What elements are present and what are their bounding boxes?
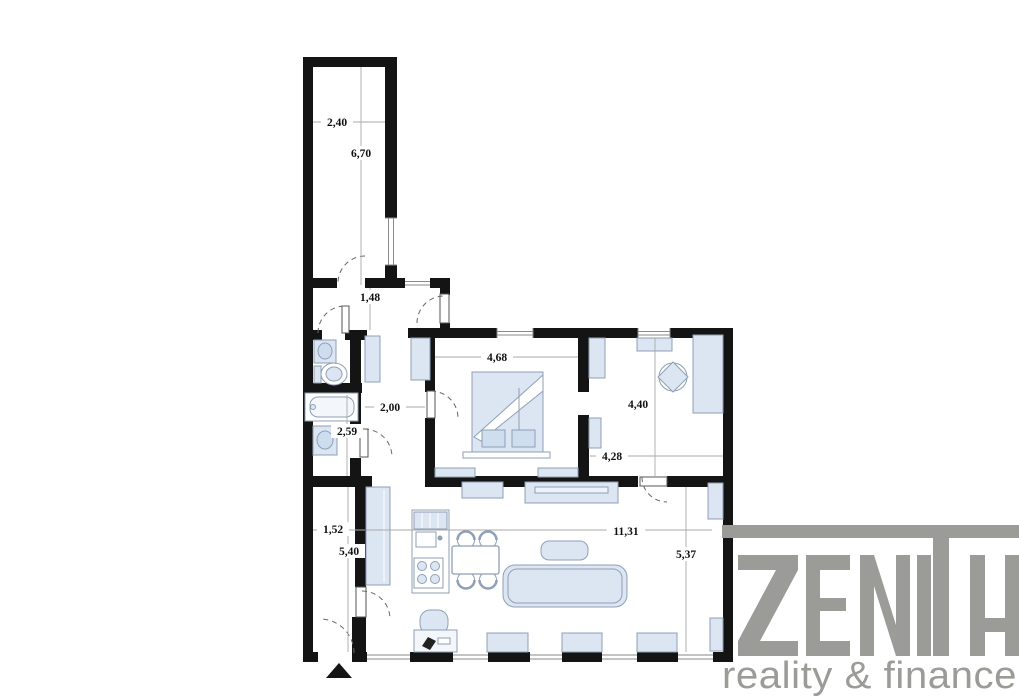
radiator: [487, 633, 528, 652]
radiator: [538, 468, 578, 477]
wall-segment: [303, 476, 372, 487]
tv-bench: [462, 482, 618, 503]
zenith-logo: reality & finance: [722, 525, 1019, 697]
dimension-label-corridor2-width: 1,52: [323, 524, 343, 536]
dimension-label-entry-hall-depth: 1,48: [360, 292, 380, 304]
wall-segment: [352, 617, 366, 652]
door-leaf: [342, 306, 349, 333]
wall-segment: [303, 652, 318, 662]
kitchen-counter: [366, 487, 390, 585]
logo-letter-t-stem: [933, 525, 949, 656]
bathtub-icon: [305, 393, 358, 421]
window: [602, 652, 637, 662]
wall-segment: [578, 415, 589, 476]
logo-letter-n: [860, 555, 910, 656]
wall-segment: [488, 652, 530, 662]
sofa-icon: [503, 565, 627, 607]
desk-chair-icon: [658, 362, 688, 392]
wc-sink-icon: [314, 340, 336, 363]
door-swing-arc: [320, 619, 354, 653]
wall-segment: [303, 57, 397, 67]
wall-segment: [303, 57, 313, 662]
wall-segment: [352, 652, 367, 662]
coffee-table: [541, 541, 588, 560]
radiator: [435, 468, 475, 477]
window: [367, 652, 410, 662]
wall-segment: [408, 328, 497, 338]
zenith-wordmark: [722, 525, 1019, 656]
logo-letter-e: [806, 555, 850, 656]
dimension-label-study-width: 4,28: [602, 451, 622, 463]
window: [678, 652, 713, 662]
window: [497, 328, 533, 338]
logo-letter-h: [1005, 555, 1019, 656]
logo-letter-z: [738, 555, 798, 656]
logo-letter-h: [970, 618, 1019, 632]
kitchen-block-icon: [412, 510, 449, 593]
toilet-icon: [314, 363, 347, 385]
dimension-label-hallway-width: 2,00: [380, 402, 400, 414]
door-swing-arc: [318, 306, 345, 333]
dimension-label-corridor2-length: 5,40: [339, 546, 359, 558]
wardrobe: [365, 336, 380, 382]
radiator: [708, 483, 723, 519]
entrance-arrow-icon: [326, 663, 352, 678]
dimension-label-bathroom-length: 2,59: [337, 426, 357, 438]
logo-letter-h: [970, 555, 985, 656]
radiator: [637, 338, 672, 351]
window: [530, 652, 562, 662]
wall-segment: [355, 487, 366, 587]
wall-segment: [350, 330, 361, 387]
dimension-label-study-length: 4,40: [628, 399, 648, 411]
radiator: [710, 618, 723, 651]
dimension-label-bedroom-width: 4,68: [487, 352, 507, 364]
wall-segment: [410, 652, 453, 662]
dimension-label-corridor-length: 6,70: [351, 148, 371, 160]
dimension-label-living-length: 5,37: [676, 549, 696, 561]
window: [453, 652, 488, 662]
door-leaf: [640, 477, 667, 486]
window: [638, 328, 670, 338]
wardrobe: [411, 338, 430, 380]
door-leaf: [440, 294, 449, 323]
dimension-label-corridor-width: 2,40: [327, 117, 347, 129]
radiator: [637, 633, 677, 652]
wall-segment: [313, 278, 337, 288]
door-leaf: [427, 391, 435, 418]
dimension-label-living-width: 11,31: [613, 526, 638, 538]
window: [385, 218, 397, 265]
logo-letter-i: [917, 555, 931, 656]
desk-icon: [414, 610, 457, 652]
wall-segment: [385, 67, 397, 218]
dining-table-icon: [452, 532, 499, 589]
wall-segment: [533, 328, 638, 338]
double-bed-icon: [463, 372, 550, 458]
wall-segment: [723, 328, 733, 662]
radiator: [562, 633, 602, 652]
cabinet: [589, 418, 601, 448]
wall-segment: [637, 652, 678, 662]
window: [405, 278, 430, 288]
wall-segment: [313, 330, 322, 340]
logo-subtitle: reality & finance: [722, 655, 1017, 697]
logo-bar: [722, 525, 1019, 538]
wall-segment: [562, 652, 602, 662]
cabinet: [589, 338, 605, 378]
furniture: [305, 335, 723, 652]
wall-segment: [578, 338, 589, 392]
floorplan-page: 2,406,701,482,002,594,684,404,281,525,40…: [0, 0, 1019, 697]
study-bed: [693, 335, 723, 413]
floorplan-drawing: 2,406,701,482,002,594,684,404,281,525,40…: [0, 0, 1019, 697]
wall-segment: [365, 278, 405, 288]
wall-segment: [425, 418, 435, 478]
